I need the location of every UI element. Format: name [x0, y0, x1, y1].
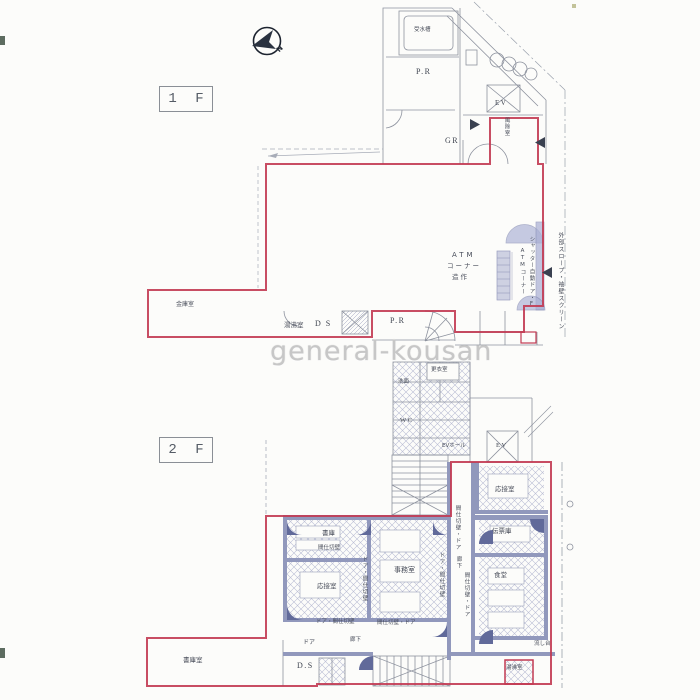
label-reception: 応接室 — [317, 583, 337, 590]
label-atm-2: コーナー — [447, 263, 481, 270]
label-shutter-note: シャッター自動ドア・F — [528, 236, 534, 308]
label-majikiri-door-corridor: 間仕切壁・ドア — [454, 505, 460, 551]
label-atm-vertical: ATMコーナー — [519, 248, 525, 295]
label-ds-2f: D.S — [297, 662, 314, 670]
label-koui: 更衣室 — [431, 368, 448, 374]
stairs-lower-2f — [373, 656, 450, 686]
floor2-tag: 2 F — [159, 437, 213, 463]
label-atm-3: 造作 — [452, 274, 469, 281]
label-denpyoko: 伝票庫 — [492, 528, 512, 535]
label-door: ドア — [303, 640, 315, 646]
watermark-text: general-kousan — [270, 336, 492, 367]
label-ev-2f: EV — [496, 443, 508, 450]
floorplan-scan: general-kousan 1 F 2 F N 受水槽 P.R EV GR 風… — [0, 0, 700, 700]
label-door-majikiri-left: ドア・間仕切壁 — [361, 556, 367, 602]
label-majikiri: 間仕切壁 — [318, 546, 340, 552]
label-fujo: 風除室 — [503, 117, 509, 137]
label-door-majikiri-right: ドア・間仕切壁 — [438, 552, 444, 598]
label-senmen: 洗面 — [398, 380, 409, 386]
label-slope-note: 外部スロープ・袖壁スクリーン — [557, 232, 563, 330]
floor1-tag: 1 F — [159, 86, 213, 112]
label-wc: WC — [400, 418, 413, 425]
stairs-upper-2f — [392, 455, 448, 515]
label-ev-hall: EVホール — [442, 444, 466, 450]
label-shoko-room: 書庫室 — [183, 657, 203, 664]
label-yuwakashi-2f: 湯沸室 — [506, 666, 523, 672]
north-arrow-icon — [252, 28, 281, 55]
toilet-fixture-icons — [466, 50, 537, 80]
label-reception-upper: 応接室 — [495, 486, 515, 493]
label-shoko: 書庫 — [322, 530, 335, 537]
label-water-tank: 受水槽 — [414, 28, 431, 34]
label-yuwakashi-1f: 湯沸室 — [284, 322, 304, 329]
label-atm-1: ATM — [452, 252, 476, 259]
ds-shaft-1f — [342, 311, 368, 334]
label-ev-1f: EV — [495, 100, 507, 107]
label-majikiri-door-dining: 間仕切壁・ドア — [463, 572, 469, 618]
label-office: 事務室 — [394, 567, 415, 574]
label-gr: GR — [445, 137, 459, 145]
label-sink: 流し台 — [534, 642, 551, 648]
label-majikiri-door-bottom: 間仕切壁・ドア — [377, 621, 416, 627]
label-dining: 食堂 — [494, 572, 507, 579]
label-rouka: 廊下 — [350, 638, 361, 644]
label-rouka-vertical: 廊下 — [455, 556, 461, 569]
door-swing-arcs-1f — [284, 110, 508, 326]
label-pr-upper: P.R — [416, 68, 431, 76]
label-pr-lower: P.R — [390, 317, 405, 325]
label-door-majikiri-bottom: ドア・間仕切壁 — [316, 620, 355, 626]
floor1-lease-outline — [148, 118, 543, 343]
label-ds-1f: D S — [315, 320, 332, 328]
label-safe-room: 金庫室 — [176, 302, 194, 308]
